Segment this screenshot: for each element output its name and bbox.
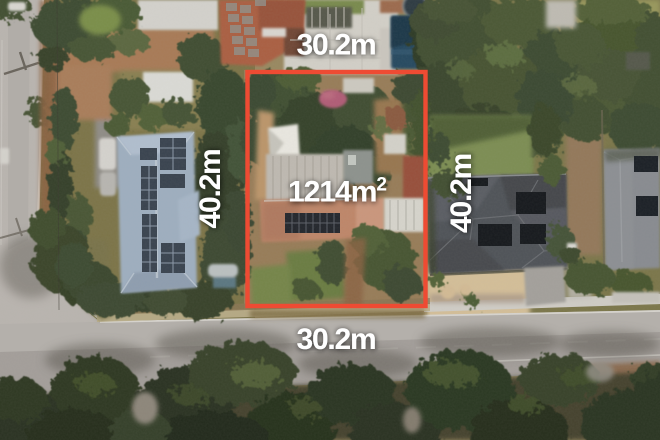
svg-text:40.2m: 40.2m	[445, 154, 478, 233]
svg-text:30.2m: 30.2m	[296, 323, 375, 356]
svg-text:1214m2: 1214m2	[288, 175, 386, 209]
svg-text:40.2m: 40.2m	[194, 149, 227, 228]
svg-text:30.2m: 30.2m	[296, 29, 375, 62]
